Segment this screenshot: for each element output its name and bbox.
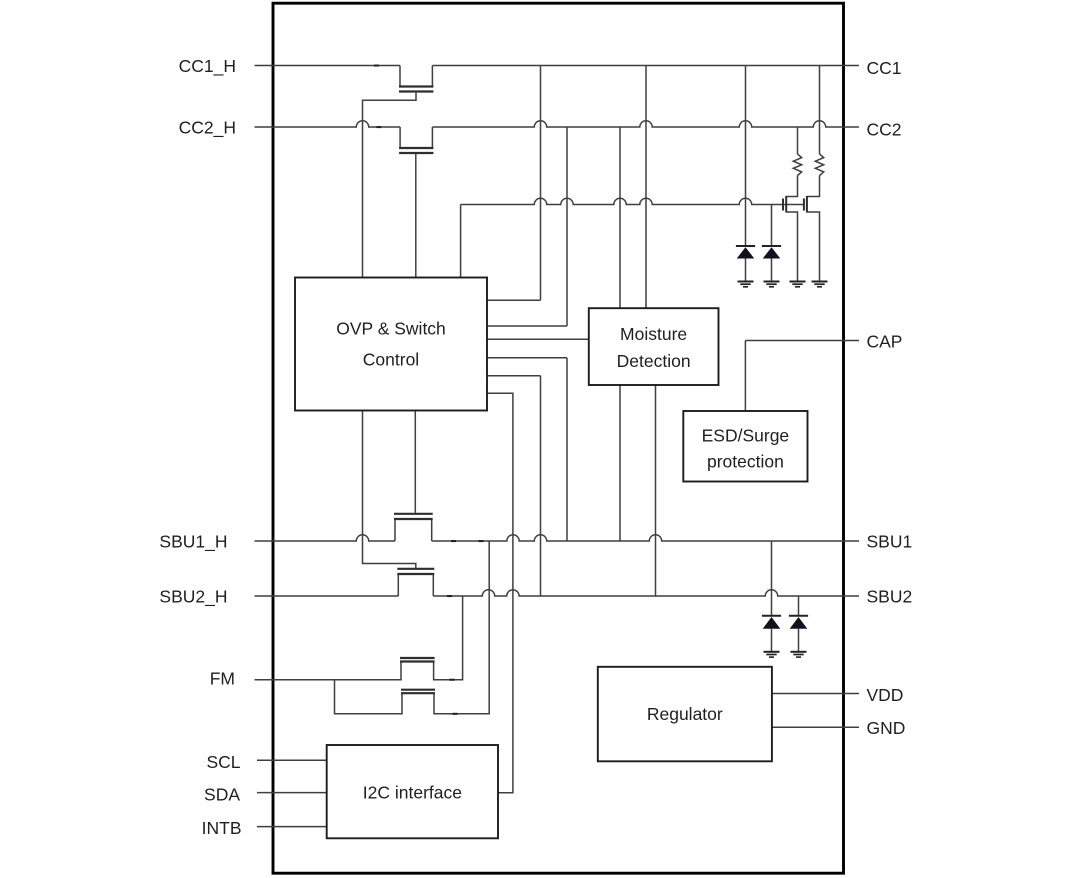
svg-text:Detection: Detection bbox=[617, 351, 691, 371]
svg-text:VDD: VDD bbox=[867, 685, 904, 705]
svg-text:CC2_H: CC2_H bbox=[179, 118, 236, 139]
svg-text:SBU2: SBU2 bbox=[867, 586, 913, 606]
svg-text:ESD/Surge: ESD/Surge bbox=[702, 425, 790, 445]
svg-text:GND: GND bbox=[867, 718, 906, 738]
svg-text:SDA: SDA bbox=[204, 785, 240, 805]
svg-text:I2C interface: I2C interface bbox=[363, 783, 462, 803]
svg-text:CC2: CC2 bbox=[867, 120, 902, 140]
svg-text:FM: FM bbox=[210, 669, 235, 689]
svg-text:Moisture: Moisture bbox=[620, 324, 687, 344]
svg-text:SBU1_H: SBU1_H bbox=[159, 532, 227, 553]
svg-text:OVP & Switch: OVP & Switch bbox=[336, 319, 446, 339]
svg-text:SCL: SCL bbox=[206, 752, 240, 772]
svg-text:SBU1: SBU1 bbox=[867, 531, 913, 551]
svg-text:SBU2_H: SBU2_H bbox=[159, 587, 227, 608]
svg-text:protection: protection bbox=[707, 451, 784, 471]
svg-text:CAP: CAP bbox=[867, 331, 903, 351]
svg-text:Control: Control bbox=[363, 350, 419, 370]
svg-text:Regulator: Regulator bbox=[647, 704, 723, 724]
svg-text:INTB: INTB bbox=[202, 818, 242, 838]
svg-text:CC1_H: CC1_H bbox=[179, 56, 236, 77]
svg-text:CC1: CC1 bbox=[867, 58, 902, 78]
